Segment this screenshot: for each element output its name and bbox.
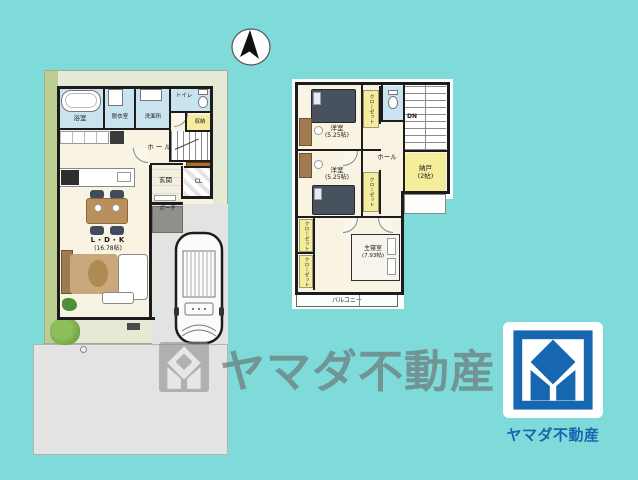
toilet-tank-2f <box>388 90 398 95</box>
balcony-label: バルコニー <box>332 297 362 305</box>
company-logo-card <box>503 322 603 418</box>
stairs-2f-divider <box>425 85 426 150</box>
watermark: ヤマダ不動産 <box>158 338 496 396</box>
balcony-divider <box>359 295 360 306</box>
wall <box>297 252 314 254</box>
north-compass-icon <box>229 26 273 70</box>
wall <box>403 152 405 193</box>
watermark-logo-icon <box>158 341 210 393</box>
company-name: ヤマダ不動産 <box>496 424 610 445</box>
wall <box>361 151 363 218</box>
wall <box>295 82 298 295</box>
wall <box>381 84 383 122</box>
wall <box>361 82 363 151</box>
balcony: バルコニー <box>296 294 398 307</box>
closet-strip-label: クローゼット <box>304 221 309 251</box>
floorplan-image: 浴室 脱衣室 洗面所 トイレ 収納 CL ホール 玄関 ポーチ <box>0 0 638 480</box>
pillow <box>314 188 322 200</box>
wall <box>403 191 450 194</box>
closet-strip: クローゼット <box>363 172 379 212</box>
wall <box>403 150 449 152</box>
wall <box>295 216 403 218</box>
wall <box>313 218 315 290</box>
closet-strip: クローゼット <box>299 255 313 288</box>
roof-section <box>404 194 446 214</box>
bedroom1-label: 洋室 (5.25帖) <box>313 124 361 140</box>
nando-label: 納戸 <box>419 164 432 172</box>
wall <box>403 82 405 152</box>
bedroom2-size-text: (5.25帖) <box>313 174 361 182</box>
wall <box>295 149 381 151</box>
closet-strip: クローゼット <box>299 219 313 252</box>
pillow <box>313 92 321 105</box>
desk <box>299 153 312 178</box>
wall <box>381 120 403 122</box>
pillow <box>387 258 396 275</box>
wall <box>379 170 381 214</box>
closet-strip-label: クローゼット <box>369 177 374 207</box>
toilet-bowl-2f <box>388 96 398 109</box>
hall-2f-label: ホール <box>372 153 402 161</box>
car-illustration <box>174 231 224 345</box>
closet-strip-label: クローゼット <box>369 94 374 124</box>
closet-strip-label: クローゼット <box>304 257 309 287</box>
nando-size-text: (2帖) <box>418 172 434 180</box>
desk <box>299 118 312 146</box>
stairs-dn-label: DN <box>407 113 417 121</box>
company-logo-icon <box>513 330 593 410</box>
hall-2f-label-text: ホール <box>377 153 397 161</box>
storage-room-nando: 納戸 (2帖) <box>405 153 446 191</box>
master-bedroom-label-text: 主寝室 <box>350 245 396 253</box>
master-bedroom-size-text: (7.93帖) <box>350 253 396 260</box>
wall <box>295 292 404 295</box>
master-bedroom-label: 主寝室 (7.93帖) <box>350 245 396 260</box>
bedroom1-size-text: (5.25帖) <box>313 132 361 140</box>
stairs-2f: DN <box>405 85 446 150</box>
wall <box>295 82 450 85</box>
closet-strip: クローゼット <box>363 90 379 128</box>
wall <box>401 191 404 295</box>
wall <box>447 82 450 194</box>
watermark-text: ヤマダ不動産 <box>220 335 496 400</box>
bedroom2-label: 洋室 (5.25帖) <box>313 166 361 182</box>
